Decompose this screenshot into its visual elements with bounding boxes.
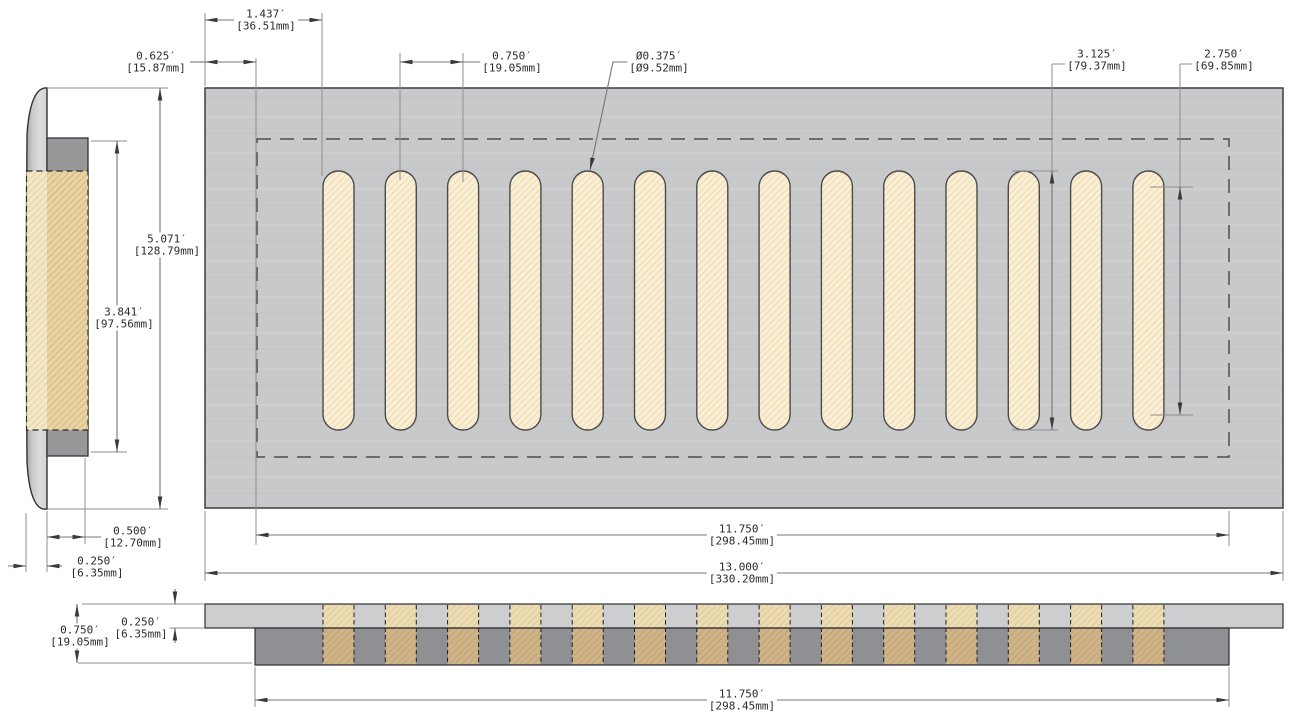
vent-slot	[510, 171, 541, 430]
vent-slot	[697, 171, 728, 430]
section-slot-upper	[759, 605, 790, 628]
section-slot-lower	[1071, 629, 1102, 665]
section-slot-upper	[448, 605, 479, 628]
section-slot-lower	[1008, 629, 1039, 665]
dim-slot-diameter: Ø0.375′[Ø9.52mm]	[627, 50, 691, 75]
section-slot-upper	[510, 605, 541, 628]
dim-section-height: 0.750′[19.05mm]	[48, 624, 112, 649]
section-slot-upper	[572, 605, 603, 628]
dim-collar-depth: 0.500′[12.70mm]	[101, 525, 165, 550]
dim-section-duct-width: 11.750′[298.45mm]	[707, 688, 777, 713]
section-slot-upper	[385, 605, 416, 628]
drawing-svg	[0, 0, 1308, 725]
section-slot-lower	[884, 629, 915, 665]
section-slot-upper	[1008, 605, 1039, 628]
dim-slot-pitch: 0.750′[19.05mm]	[480, 50, 544, 75]
dim-duct-width: 11.750′[298.45mm]	[707, 523, 777, 548]
section-slot-upper	[1133, 605, 1164, 628]
vent-slot	[448, 171, 479, 430]
vent-slot	[884, 171, 915, 430]
section-slot-upper	[697, 605, 728, 628]
vent-slot	[821, 171, 852, 430]
section-slot-lower	[572, 629, 603, 665]
section-slot-upper	[821, 605, 852, 628]
section-faceplate	[205, 604, 1283, 628]
vent-slot	[946, 171, 977, 430]
dim-face-thickness: 0.250′[6.35mm]	[69, 555, 126, 580]
vent-slot	[1008, 171, 1039, 430]
dim-slot-cc-length: 2.750′[69.85mm]	[1192, 48, 1256, 73]
dim-duct-inset: 0.625′[15.87mm]	[124, 50, 188, 75]
dim-flange-offset: 1.437′[36.51mm]	[234, 8, 298, 33]
section-slot-lower	[510, 629, 541, 665]
section-slot-lower	[635, 629, 666, 665]
section-slot-lower	[697, 629, 728, 665]
front-section-view	[205, 604, 1283, 665]
section-slot-upper	[635, 605, 666, 628]
side-opening-hatch-right	[47, 171, 88, 430]
section-slot-upper	[884, 605, 915, 628]
dim-slot-length: 3.125′[79.37mm]	[1065, 48, 1129, 73]
section-slot-lower	[323, 629, 354, 665]
dim-duct-height: 3.841′[97.56mm]	[92, 306, 156, 331]
section-slot-lower	[1133, 629, 1164, 665]
section-slot-lower	[946, 629, 977, 665]
vent-slot	[323, 171, 354, 430]
vent-slot	[1071, 171, 1102, 430]
side-profile-view	[26, 88, 88, 509]
section-slot-upper	[1071, 605, 1102, 628]
vent-slot	[572, 171, 603, 430]
top-plan-view	[205, 88, 1283, 508]
section-slot-lower	[759, 629, 790, 665]
section-slot-upper	[946, 605, 977, 628]
vent-slot	[635, 171, 666, 430]
section-slot-lower	[385, 629, 416, 665]
vent-slot	[385, 171, 416, 430]
dim-overall-height: 5.071′[128.79mm]	[132, 233, 202, 258]
section-slot-lower	[448, 629, 479, 665]
section-slot-upper	[323, 605, 354, 628]
vent-slot	[759, 171, 790, 430]
section-slot-lower	[821, 629, 852, 665]
dim-overall-width: 13.000′[330.20mm]	[707, 561, 777, 586]
faceplate-texture	[205, 88, 1283, 508]
technical-drawing-canvas: 1.437′[36.51mm] 0.625′[15.87mm] 0.750′[1…	[0, 0, 1308, 725]
vent-slot	[1133, 171, 1164, 430]
side-opening-hatch-left	[27, 171, 48, 430]
dim-section-face-thickness: 0.250′[6.35mm]	[113, 616, 170, 641]
